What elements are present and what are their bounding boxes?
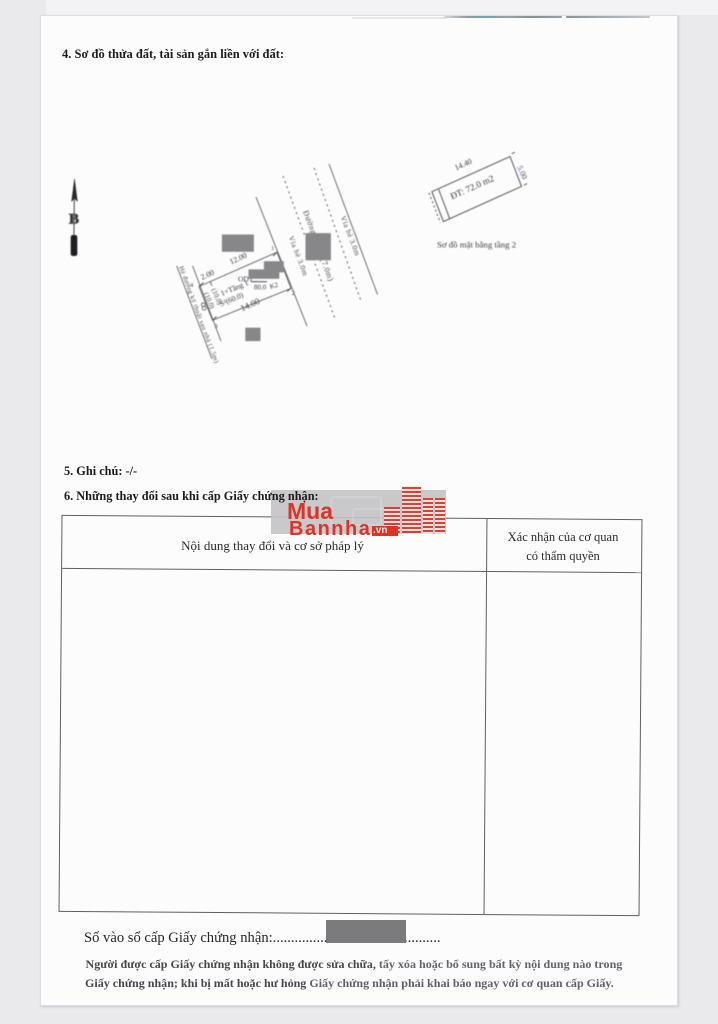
svg-text:3: 3 xyxy=(215,323,218,330)
svg-text:80.0: 80.0 xyxy=(254,284,267,292)
svg-text:5.00: 5.00 xyxy=(515,164,529,180)
svg-text:12.00: 12.00 xyxy=(228,251,248,267)
svg-text:Sơ đồ mặt bằng tầng 2: Sơ đồ mặt bằng tầng 2 xyxy=(437,240,516,250)
svg-text:4: 4 xyxy=(190,282,194,289)
svg-text:Vỉa hè 3.0m: Vỉa hè 3.0m xyxy=(339,214,363,257)
svg-text:K2: K2 xyxy=(269,280,280,290)
svg-text:2: 2 xyxy=(292,290,295,297)
svg-text:1: 1 xyxy=(271,245,274,252)
svg-text:ĐT: 72.0 m2: ĐT: 72.0 m2 xyxy=(449,173,496,201)
svg-text:14.40: 14.40 xyxy=(453,157,473,173)
svg-text:B: B xyxy=(69,212,79,228)
svg-text:2.00: 2.00 xyxy=(199,268,215,282)
svg-text:(7.0m): (7.0m) xyxy=(319,257,336,283)
